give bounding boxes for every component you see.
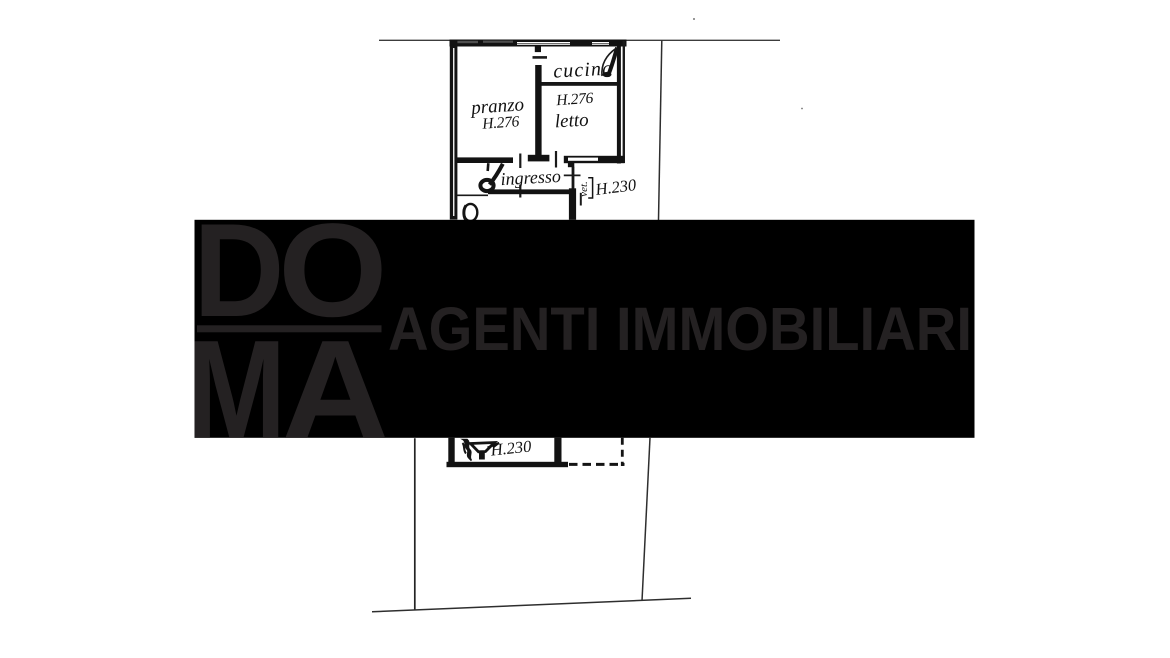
svg-text:cucina: cucina <box>553 57 614 82</box>
svg-text:H.276: H.276 <box>555 90 594 110</box>
svg-text:ingresso: ingresso <box>500 166 561 189</box>
svg-text:AGENTI IMMOBILIARI: AGENTI IMMOBILIARI <box>388 295 972 363</box>
svg-text:letto: letto <box>554 110 589 133</box>
svg-text:H.276: H.276 <box>481 113 520 133</box>
